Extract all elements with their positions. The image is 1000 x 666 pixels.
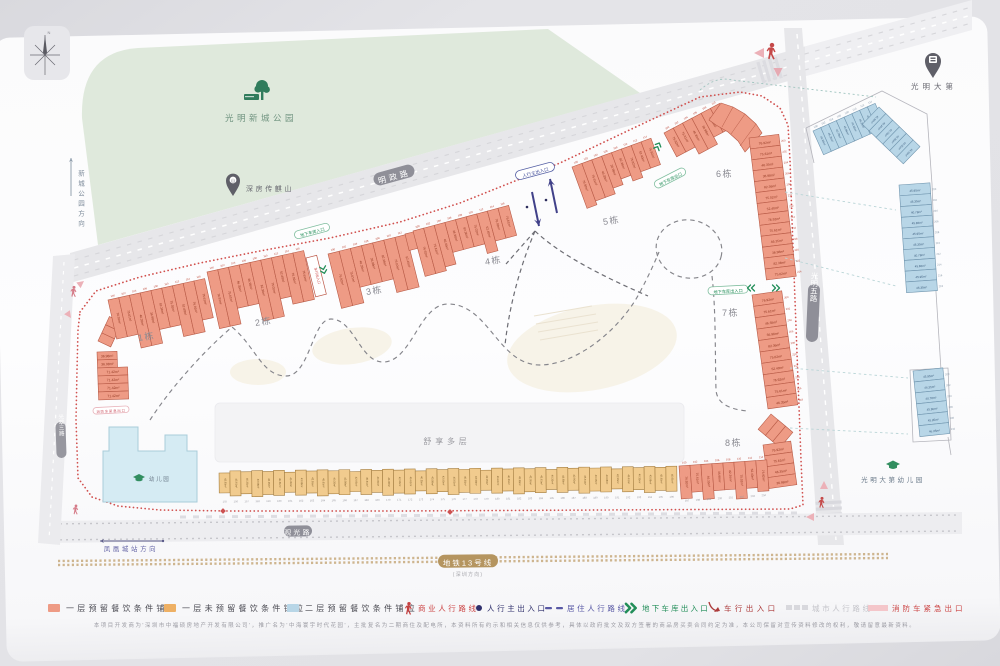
svg-text:71.42m²: 71.42m² [106, 370, 119, 374]
svg-text:171: 171 [397, 498, 402, 502]
svg-text:(深圳方向): (深圳方向) [453, 571, 484, 578]
svg-text:6栋: 6栋 [716, 168, 733, 179]
svg-text:156: 156 [234, 499, 239, 503]
svg-text:42.95m²: 42.95m² [311, 477, 315, 487]
svg-text:40.35m²: 40.35m² [594, 475, 598, 485]
svg-text:42.95m²: 42.95m² [442, 476, 446, 486]
svg-text:消防车紧急出口: 消防车紧急出口 [892, 603, 966, 613]
svg-text:71.42m²: 71.42m² [107, 386, 120, 390]
svg-text:177: 177 [462, 497, 467, 501]
svg-text:43.98m²: 43.98m² [605, 475, 609, 485]
svg-text:42.95m²: 42.95m² [485, 475, 489, 485]
svg-text:76.92m²: 76.92m² [684, 476, 689, 488]
svg-text:40.78m²: 40.78m² [914, 253, 925, 258]
svg-text:40.35m²: 40.35m² [376, 477, 380, 487]
svg-text:城市人行路线: 城市人行路线 [812, 603, 873, 613]
svg-text:173: 173 [419, 497, 424, 501]
svg-text:45.61m²: 45.61m² [540, 475, 544, 485]
svg-text:45.61m²: 45.61m² [234, 479, 238, 489]
svg-text:光明新城公园: 光明新城公园 [225, 113, 297, 123]
svg-text:40.35m²: 40.35m² [551, 475, 555, 485]
svg-text:159: 159 [266, 499, 271, 503]
svg-text:43.98m²: 43.98m² [256, 479, 260, 489]
svg-text:光明大第: 光明大第 [911, 81, 957, 91]
svg-text:43.98m²: 43.98m² [518, 476, 522, 486]
svg-text:二层预留餐饮条件铺位: 二层预留餐饮条件铺位 [305, 603, 418, 613]
svg-text:181: 181 [506, 496, 511, 500]
svg-text:深房传麒山: 深房传麒山 [246, 184, 294, 193]
svg-text:43.98m²: 43.98m² [387, 477, 391, 487]
svg-text:舒享多层: 舒享多层 [423, 436, 470, 446]
svg-text:人行主出入口: 人行主出入口 [487, 603, 548, 613]
svg-text:山: 山 [231, 177, 235, 183]
svg-text:42.95m²: 42.95m² [267, 478, 271, 488]
svg-text:居住人行路线: 居住人行路线 [567, 603, 628, 613]
svg-text:光明五路: 光明五路 [809, 270, 820, 302]
svg-text:43.98m²: 43.98m² [474, 476, 478, 486]
svg-text:车行出入口: 车行出入口 [724, 603, 779, 613]
svg-text:45.61m²: 45.61m² [670, 474, 674, 484]
svg-text:161: 161 [288, 499, 293, 503]
svg-text:商业人行路线: 商业人行路线 [418, 603, 479, 613]
svg-text:地下车库出入口: 地下车库出入口 [642, 603, 710, 613]
svg-text:40.35m²: 40.35m² [638, 474, 642, 484]
svg-text:43.98m²: 43.98m² [343, 477, 347, 487]
svg-text:43.98m²: 43.98m² [561, 475, 565, 485]
svg-text:166: 166 [343, 498, 348, 502]
svg-text:42.95m²: 42.95m² [354, 477, 358, 487]
svg-text:42.95m²: 42.95m² [224, 478, 228, 488]
svg-text:180: 180 [495, 497, 500, 501]
svg-text:193: 193 [637, 495, 642, 499]
svg-text:76.92m²: 76.92m² [761, 470, 766, 482]
svg-text:观光路: 观光路 [284, 528, 312, 537]
svg-text:168: 168 [364, 498, 369, 502]
svg-text:45.61m²: 45.61m² [365, 477, 369, 487]
svg-text:75.61m²: 75.61m² [695, 472, 700, 484]
svg-text:45.61m²: 45.61m² [583, 475, 587, 485]
svg-text:43.98m²: 43.98m² [431, 476, 435, 486]
svg-text:195: 195 [659, 495, 664, 499]
svg-text:164: 164 [321, 498, 326, 502]
svg-text:8栋: 8栋 [725, 437, 742, 448]
svg-text:155: 155 [223, 499, 228, 503]
svg-text:45.61m²: 45.61m² [627, 474, 631, 484]
svg-text:189: 189 [593, 496, 598, 500]
svg-text:凤凰城站方向: 凤凰城站方向 [104, 544, 159, 553]
svg-text:36.98m²: 36.98m² [101, 362, 114, 366]
svg-text:167: 167 [353, 498, 358, 502]
svg-text:75.02m²: 75.02m² [739, 474, 744, 486]
svg-text:42.95m²: 42.95m² [616, 474, 620, 484]
svg-text:本项目开发商为'深圳市中福硕房地产开发有限公司'，推广名为': 本项目开发商为'深圳市中福硕房地产开发有限公司'，推广名为'中海寰宇时代花园'，… [94, 621, 916, 629]
svg-text:157: 157 [244, 499, 249, 503]
svg-text:42.95m²: 42.95m² [660, 474, 664, 484]
svg-text:46.35m²: 46.35m² [706, 476, 711, 488]
svg-text:36.98m²: 36.98m² [717, 471, 722, 483]
svg-text:N: N [48, 30, 51, 35]
svg-text:40.35m²: 40.35m² [420, 476, 424, 486]
svg-text:45.61m²: 45.61m² [496, 476, 500, 486]
svg-text:一层预留餐饮条件铺位: 一层预留餐饮条件铺位 [66, 603, 179, 613]
svg-text:45.95m²: 45.95m² [912, 231, 923, 236]
svg-text:190: 190 [604, 495, 609, 499]
svg-text:42.95m²: 42.95m² [572, 475, 576, 485]
svg-text:184: 184 [539, 496, 544, 500]
svg-text:176: 176 [452, 497, 457, 501]
svg-text:45.61m²: 45.61m² [409, 477, 413, 487]
svg-text:179: 179 [484, 497, 489, 501]
svg-text:170: 170 [386, 498, 391, 502]
svg-text:165: 165 [332, 498, 337, 502]
svg-text:185: 185 [550, 496, 555, 500]
svg-text:178: 178 [473, 497, 478, 501]
svg-text:45.95m²: 45.95m² [909, 188, 920, 193]
svg-text:174: 174 [430, 497, 435, 501]
svg-text:169: 169 [375, 498, 380, 502]
svg-text:172: 172 [408, 497, 413, 501]
svg-text:192: 192 [626, 495, 631, 499]
svg-text:40.35m²: 40.35m² [245, 478, 249, 488]
svg-text:42.95m²: 42.95m² [529, 475, 533, 485]
svg-text:71.42m²: 71.42m² [107, 378, 120, 382]
svg-text:183: 183 [528, 496, 533, 500]
svg-text:196: 196 [670, 495, 675, 499]
svg-text:52.40m²: 52.40m² [750, 469, 755, 481]
svg-text:42.95m²: 42.95m² [398, 477, 402, 487]
svg-text:191: 191 [615, 495, 620, 499]
svg-text:45.86m²: 45.86m² [912, 221, 923, 226]
svg-text:40.35m²: 40.35m² [333, 478, 337, 488]
svg-text:40.78m²: 40.78m² [911, 210, 922, 215]
svg-text:45.86m²: 45.86m² [915, 264, 926, 269]
svg-text:40.35m²: 40.35m² [507, 475, 511, 485]
svg-text:194: 194 [648, 495, 653, 499]
svg-text:45.61m²: 45.61m² [452, 477, 456, 487]
svg-text:光明大第幼儿园: 光明大第幼儿园 [861, 475, 925, 484]
svg-text:158: 158 [255, 499, 260, 503]
svg-text:160: 160 [277, 499, 282, 503]
svg-text:175: 175 [441, 497, 446, 501]
svg-text:163: 163 [310, 498, 315, 502]
svg-text:71.42m²: 71.42m² [107, 394, 120, 398]
svg-text:45.95m²: 45.95m² [915, 274, 926, 279]
svg-text:40.35m²: 40.35m² [463, 476, 467, 486]
svg-text:43.98m²: 43.98m² [300, 478, 304, 488]
svg-text:地铁13号线: 地铁13号线 [443, 557, 493, 567]
svg-text:182: 182 [517, 496, 522, 500]
svg-text:187: 187 [571, 496, 576, 500]
svg-text:82.36m²: 82.36m² [728, 470, 733, 482]
svg-text:43.98m²: 43.98m² [649, 475, 653, 485]
svg-text:46.35m²: 46.35m² [910, 199, 921, 204]
svg-text:186: 186 [561, 496, 566, 500]
svg-text:162: 162 [299, 499, 304, 503]
svg-text:188: 188 [582, 496, 587, 500]
svg-text:45.61m²: 45.61m² [322, 478, 326, 488]
svg-text:46.35m²: 46.35m² [916, 285, 927, 290]
svg-text:36.98m²: 36.98m² [101, 354, 114, 358]
svg-text:幼儿园: 幼儿园 [149, 475, 170, 483]
svg-text:7栋: 7栋 [722, 307, 739, 318]
svg-text:46.35m²: 46.35m² [913, 242, 924, 247]
svg-text:40.35m²: 40.35m² [289, 477, 293, 487]
